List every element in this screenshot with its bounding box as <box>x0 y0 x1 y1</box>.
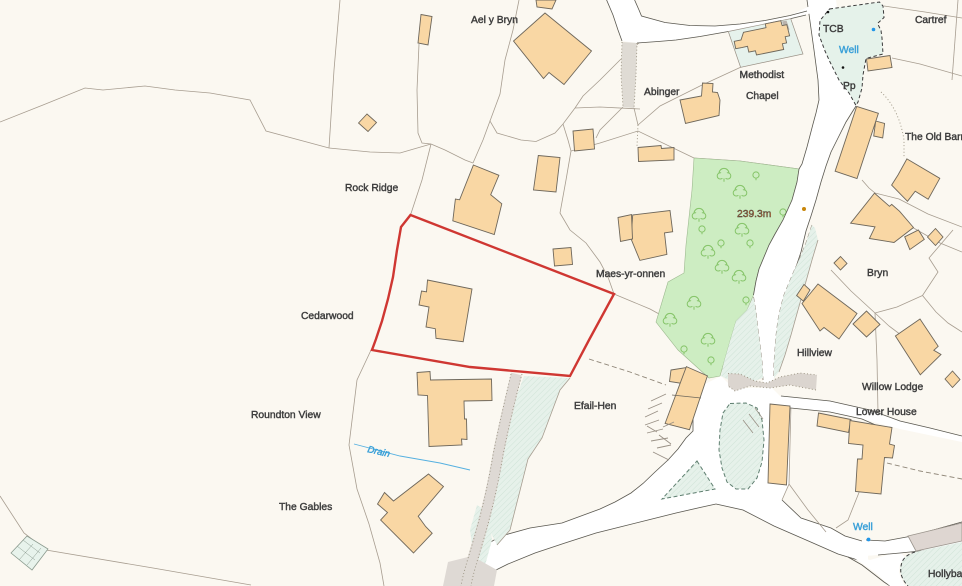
svg-text:Willow Lodge: Willow Lodge <box>862 382 924 393</box>
svg-text:TCB: TCB <box>823 24 844 35</box>
svg-text:The Gables: The Gables <box>279 502 332 513</box>
svg-text:Pp: Pp <box>843 81 856 92</box>
svg-text:Rock Ridge: Rock Ridge <box>345 183 398 194</box>
svg-text:Bryn: Bryn <box>867 268 888 279</box>
svg-text:Chapel: Chapel <box>746 91 779 102</box>
svg-text:Maes-yr-onnen: Maes-yr-onnen <box>596 269 666 280</box>
svg-text:Cedarwood: Cedarwood <box>301 311 354 322</box>
svg-text:The Old Barn: The Old Barn <box>905 132 962 143</box>
svg-text:Roundton View: Roundton View <box>251 410 321 421</box>
svg-text:Well: Well <box>839 45 859 56</box>
svg-text:Efail-Hen: Efail-Hen <box>574 401 617 412</box>
svg-text:Abinger: Abinger <box>644 87 680 98</box>
svg-text:239.3m: 239.3m <box>737 209 771 220</box>
svg-text:Well: Well <box>853 522 873 533</box>
svg-text:Methodist: Methodist <box>740 70 785 81</box>
svg-text:Ael y Bryn: Ael y Bryn <box>471 15 518 26</box>
svg-text:Lower House: Lower House <box>856 407 917 418</box>
svg-text:Hollyba: Hollyba <box>928 569 962 580</box>
svg-text:Cartref: Cartref <box>915 15 947 26</box>
svg-text:Hillview: Hillview <box>797 348 832 359</box>
